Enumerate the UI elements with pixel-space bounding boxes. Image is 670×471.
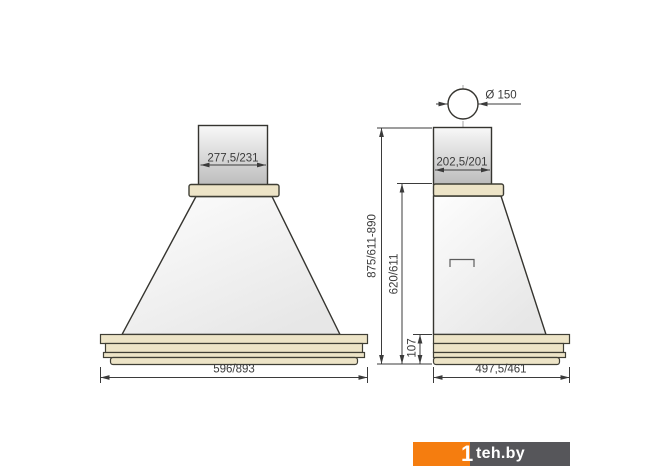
side-view: [434, 85, 570, 365]
side-chimney-depth-label: 202,5/201: [436, 157, 487, 170]
logo-site-name: teh.by: [476, 444, 525, 464]
flue-diameter-label: Ø 150: [485, 90, 516, 103]
side-mantel-shelf: [434, 184, 504, 196]
side-overall-height-label: 875/611-890: [367, 214, 380, 278]
hood-dimension-diagram: 277,5/231 596/893 Ø 150 202,5/201 875/61…: [0, 0, 670, 471]
side-overall-depth-label: 497,5/461: [475, 364, 526, 377]
front-canopy: [122, 197, 340, 335]
front-chimney-width-label: 277,5/231: [207, 153, 258, 166]
side-body-height-label: 620/611: [389, 254, 402, 295]
logo-one-icon: 1: [461, 441, 473, 467]
side-cornice-height-label: 107: [407, 338, 420, 357]
flue-outlet-circle: [448, 89, 478, 119]
technical-drawing: [0, 0, 670, 471]
side-cornice: [434, 335, 570, 365]
1teh-logo[interactable]: 1 teh.by: [413, 442, 570, 466]
front-mantel-shelf: [189, 185, 279, 197]
front-cornice: [101, 335, 368, 365]
front-overall-width-label: 596/893: [213, 364, 255, 377]
